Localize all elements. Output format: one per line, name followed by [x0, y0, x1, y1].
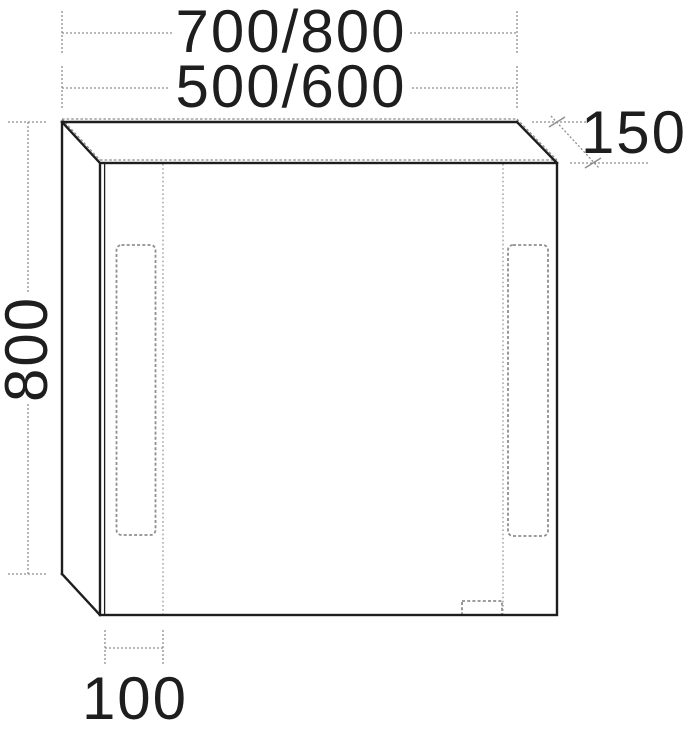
- dimension-offset: 100: [82, 630, 188, 732]
- side-panel-bottom-diagonal: [62, 574, 100, 615]
- dim-width-secondary-label: 500/600: [176, 53, 407, 120]
- led-strip-left: [117, 245, 156, 535]
- dim-tick-top: [549, 117, 565, 127]
- dimension-depth: 150: [532, 99, 687, 168]
- front-face-frame: [100, 163, 557, 615]
- dim-height-label: 800: [0, 296, 60, 402]
- top-face-right-diagonal: [517, 122, 557, 163]
- top-face-left-edge-dashed: [62, 119, 100, 160]
- dimension-width-secondary: 500/600: [62, 53, 517, 120]
- dimension-height: 800: [0, 122, 60, 574]
- dim-offset-label: 100: [82, 665, 188, 732]
- dimension-drawing: 700/800 500/600 800 150: [0, 0, 698, 736]
- mirror-cabinet-diagram: 700/800 500/600 800 150: [0, 0, 698, 736]
- dim-depth-label: 150: [581, 99, 687, 166]
- top-face-left-diagonal: [62, 122, 100, 163]
- mirror-door: [100, 163, 557, 615]
- power-socket: [462, 601, 502, 615]
- led-strip-right: [508, 245, 548, 536]
